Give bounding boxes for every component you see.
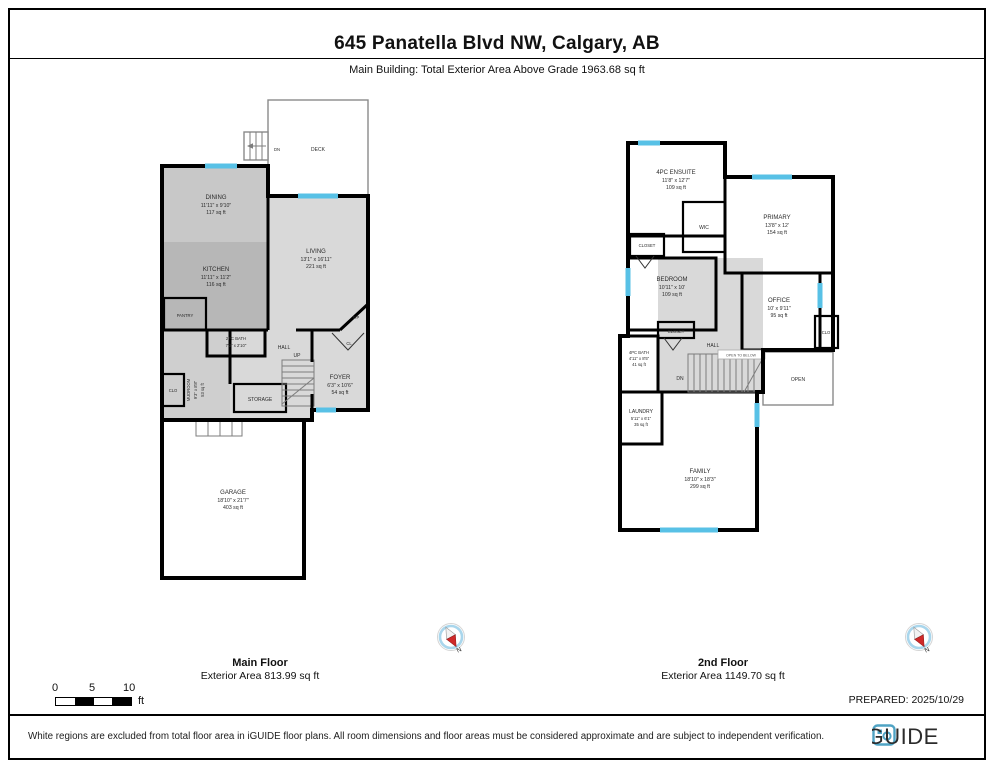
pantry-label: PANTRY [177,313,194,318]
scale-tick-5: 5 [89,682,95,694]
compass-n-label: N [456,646,463,654]
storage-label: STORAGE [248,397,273,403]
main-floor-plan: DECK DN DINING 11'11" x 9'10" 117 sq ft … [140,88,402,598]
bath4pc-dims: 4'11" x 8'5" [629,356,650,361]
bedroom-name: BEDROOM [656,277,687,283]
iguide-logo: iGUIDE [872,721,982,753]
stairs-up-label: UP [294,353,302,359]
ensuite-dims: 11'8" x 12'7" [662,178,690,184]
page-title: 645 Panatella Blvd NW, Calgary, AB [0,33,994,55]
office-dims: 10' x 9'11" [767,306,790,312]
living-dims: 13'1" x 16'11" [301,257,332,263]
family-dims: 18'10" x 18'3" [684,477,715,483]
office-closet-label: CLO [822,330,831,335]
bath4pc-name: 4PC BATH [629,350,649,355]
ensuite-name: 4PC ENSUITE [656,170,695,176]
main-floor-title: Main Floor [140,657,380,670]
closet-top-label: CLOSET [639,243,656,248]
foyer-closet-label: CL [346,341,352,346]
main-floor-caption: Main Floor Exterior Area 813.99 sq ft [140,657,380,682]
office-name: OFFICE [768,298,790,304]
prepared-date: PREPARED: 2025/10/29 [849,694,964,706]
scale-tick-0: 0 [52,682,58,694]
deck-label: DECK [311,147,326,153]
living-name: LIVING [306,249,326,255]
scale-bar: 0 5 10 ft [48,682,168,712]
garage-dims: 18'10" x 21'7" [217,498,248,504]
footer-divider [10,714,984,716]
living-room [268,196,368,330]
hall-label: HALL [278,345,291,351]
scale-tick-10: 10 [123,682,135,694]
second-floor-area: Exterior Area 1149.70 sq ft [603,670,843,682]
ensuite-area: 109 sq ft [666,185,686,191]
dining-name: DINING [206,195,227,201]
second-floor-plan: 4PC ENSUITE 11'8" x 12'7" 109 sq ft WIC … [600,130,852,545]
foyer-area: 54 sq ft [331,390,349,396]
garage-entry-steps [196,420,242,436]
mudroom-area: 53 sq ft [200,382,205,397]
office-area: 95 sq ft [770,313,788,319]
fireplace-label: F/P [353,315,360,320]
mudroom-closet-label: CLO [169,388,178,393]
kitchen-area: 116 sq ft [206,282,226,288]
primary-name: PRIMARY [763,215,790,221]
open-label: OPEN [791,377,806,383]
disclaimer-text: White regions are excluded from total fl… [28,731,848,742]
laundry-name: LAUNDRY [629,409,653,415]
mudroom-name: MUDROOM [186,378,191,401]
kitchen-name: KITCHEN [203,267,229,273]
compass-second-floor: N [901,619,937,655]
laundry-dims: 5'11" x 6'1" [631,416,652,421]
main-floor-area: Exterior Area 813.99 sq ft [140,670,380,682]
compass-main-floor: N [433,619,469,655]
living-area: 221 sq ft [306,264,326,270]
dining-area: 117 sq ft [206,210,226,216]
wic-label: WIC [699,225,709,231]
deck-dn-label: DN [274,147,280,152]
mudroom-dims: 9'3" x 8'8" [193,380,198,399]
second-floor-caption: 2nd Floor Exterior Area 1149.70 sq ft [603,657,843,682]
bath4pc-area: 41 sq ft [632,362,647,367]
primary-area: 154 sq ft [767,230,787,236]
kitchen-dims: 11'11" x 11'2" [201,275,231,281]
bath2pc-name: 2PC BATH [226,336,246,341]
family-area: 299 sq ft [690,484,710,490]
garage-step-treads [208,420,232,436]
family-name: FAMILY [690,469,711,475]
bath2pc-dims: 7'3" x 2'10" [226,343,247,348]
laundry-area: 35 sq ft [634,422,649,427]
second-floor-title: 2nd Floor [603,657,843,670]
closet-mid-label: CLOSET [668,329,685,334]
compass-n-label: N [924,646,931,654]
foyer-name: FOYER [330,375,351,381]
scale-bar-box [55,697,132,706]
primary-dims: 13'8" x 12' [765,223,789,229]
hall-2f-label: HALL [707,343,720,349]
garage-area: 403 sq ft [223,505,243,511]
garage-name: GARAGE [220,490,246,496]
stairs-dn-label: DN [676,376,684,382]
open-to-below-label: OPEN TO BELOW [726,354,757,358]
iguide-logo-text: iGUIDE [872,724,939,749]
bedroom-dims: 10'11" x 10' [659,285,685,291]
bedroom-area: 109 sq ft [662,292,682,298]
scale-unit: ft [138,695,144,707]
floorplan-page: 645 Panatella Blvd NW, Calgary, AB Main … [0,0,994,768]
dining-dims: 11'11" x 9'10" [201,203,232,209]
page-subtitle: Main Building: Total Exterior Area Above… [0,64,994,76]
foyer-dims: 6'3" x 10'6" [327,383,353,389]
title-divider [10,58,984,59]
